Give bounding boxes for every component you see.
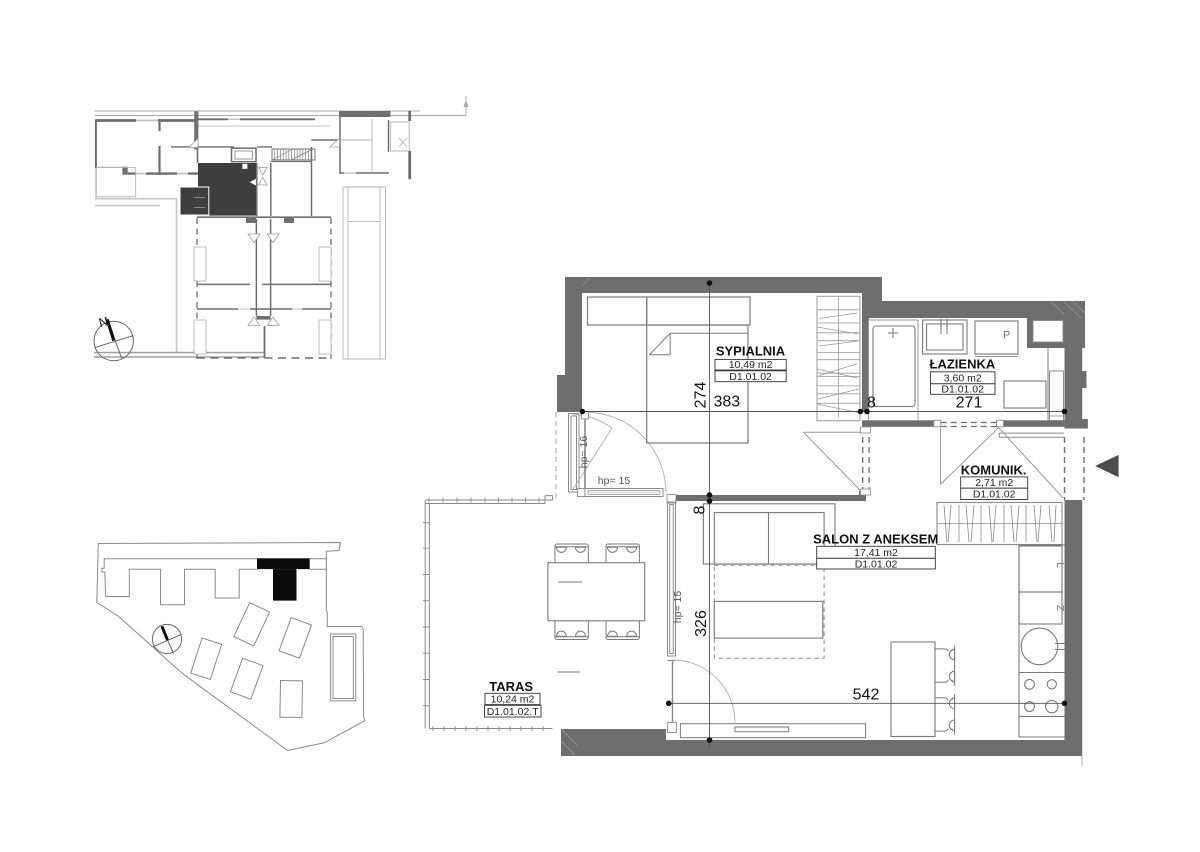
svg-text:542: 542 [853,687,880,704]
svg-text:17,41 m2: 17,41 m2 [854,547,898,559]
svg-text:8: 8 [867,395,876,412]
svg-text:8: 8 [692,505,709,514]
svg-text:KOMUNIK.: KOMUNIK. [961,463,1027,478]
svg-text:hp= 16: hp= 16 [578,436,590,469]
svg-text:383: 383 [713,394,740,411]
svg-text:10,24 m2: 10,24 m2 [491,694,535,706]
svg-text:hp= 15: hp= 15 [672,591,684,624]
svg-text:274: 274 [693,382,710,409]
svg-text:TARAS: TARAS [489,679,533,694]
svg-text:D1.01.02: D1.01.02 [729,371,772,383]
svg-text:D1.01.02.T: D1.01.02.T [487,706,540,718]
svg-text:SYPIALNIA: SYPIALNIA [716,344,786,359]
svg-text:L: L [1054,562,1065,568]
svg-text:3,60 m2: 3,60 m2 [944,372,982,384]
svg-text:hp= 15: hp= 15 [598,475,631,487]
svg-text:D1.01.02: D1.01.02 [973,489,1016,501]
svg-text:Z: Z [1054,605,1065,611]
svg-text:ŁAZIENKA: ŁAZIENKA [930,356,996,371]
svg-text:D1.01.02: D1.01.02 [855,558,898,570]
svg-text:271: 271 [956,395,983,412]
svg-text:10,49 m2: 10,49 m2 [729,359,773,371]
svg-text:SALON Z ANEKSEM: SALON Z ANEKSEM [813,531,938,546]
svg-text:326: 326 [693,610,710,637]
svg-text:2,71 m2: 2,71 m2 [975,477,1013,489]
svg-text:P: P [1003,330,1010,342]
